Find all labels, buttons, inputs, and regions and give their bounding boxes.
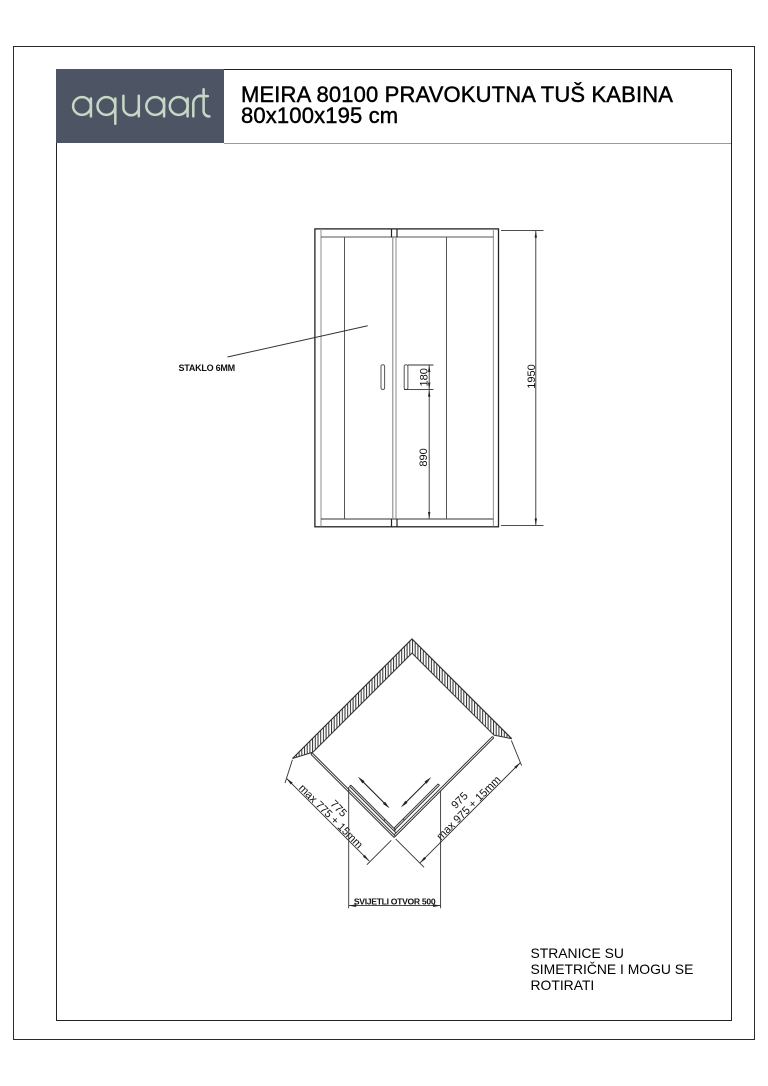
svg-text:890: 890 (418, 448, 430, 466)
svg-text:SVIJETLI OTVOR 500: SVIJETLI OTVOR 500 (354, 896, 436, 906)
svg-text:STAKLO 6MM: STAKLO 6MM (179, 363, 235, 373)
svg-text:max 775 + 15mm: max 775 + 15mm (296, 782, 365, 851)
svg-text:180: 180 (419, 368, 431, 386)
svg-text:1950: 1950 (526, 364, 538, 388)
